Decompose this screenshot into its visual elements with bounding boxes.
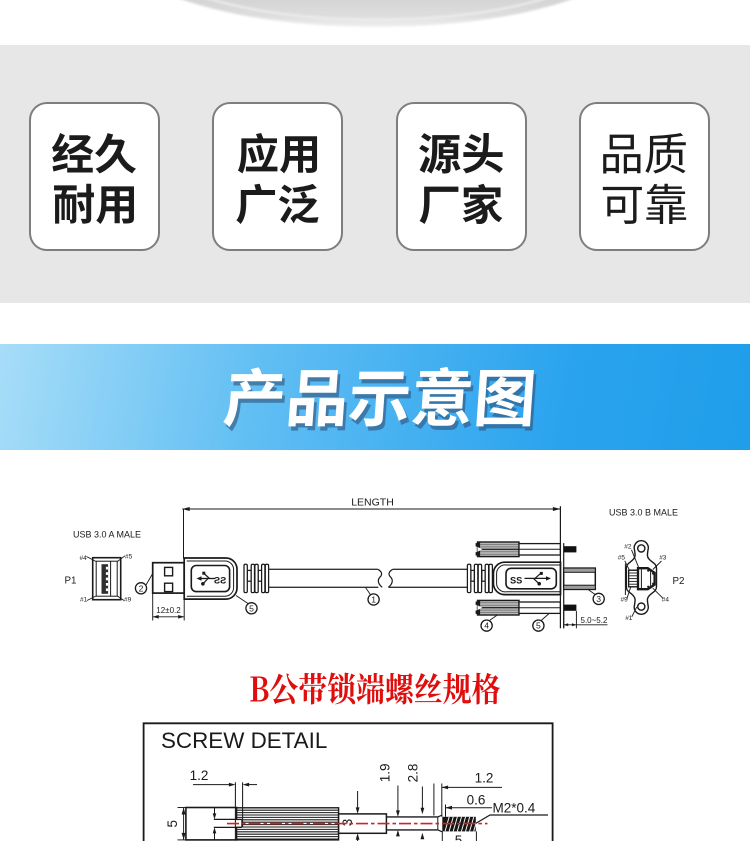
svg-text:5: 5 <box>165 820 180 828</box>
svg-text:1.2: 1.2 <box>190 768 209 783</box>
svg-text:3: 3 <box>340 819 355 827</box>
svg-text:0.6: 0.6 <box>467 792 486 807</box>
svg-text:2: 2 <box>139 583 144 593</box>
svg-text:#1: #1 <box>625 615 633 622</box>
svg-text:#5: #5 <box>618 555 626 562</box>
svg-text:SCREW DETAIL: SCREW DETAIL <box>161 728 327 753</box>
svg-text:5: 5 <box>536 621 541 631</box>
svg-text:LENGTH: LENGTH <box>351 497 394 509</box>
svg-text:P1: P1 <box>65 576 77 587</box>
svg-text:5: 5 <box>249 603 254 613</box>
svg-text:SS: SS <box>214 575 226 585</box>
svg-text:SS: SS <box>510 575 522 585</box>
svg-text:1: 1 <box>371 595 376 605</box>
svg-text:#1: #1 <box>80 597 88 604</box>
svg-text:1.9: 1.9 <box>378 764 393 783</box>
svg-text:12±0.2: 12±0.2 <box>156 606 181 615</box>
svg-text:USB 3.0 A MALE: USB 3.0 A MALE <box>73 530 141 540</box>
svg-text:#9: #9 <box>124 597 132 604</box>
svg-text:#3: #3 <box>659 555 667 562</box>
svg-text:#5: #5 <box>125 554 133 561</box>
svg-text:2.8: 2.8 <box>405 764 420 783</box>
svg-text:#4: #4 <box>662 596 670 603</box>
svg-text:3: 3 <box>596 594 601 604</box>
svg-text:5.0~5.2: 5.0~5.2 <box>581 616 608 625</box>
svg-text:5: 5 <box>455 833 463 841</box>
svg-text:4: 4 <box>484 621 489 631</box>
svg-text:1.2: 1.2 <box>475 770 494 785</box>
svg-text:P2: P2 <box>673 576 685 587</box>
svg-text:USB 3.0 B MALE: USB 3.0 B MALE <box>609 508 678 518</box>
svg-text:#4: #4 <box>80 555 88 562</box>
svg-text:#9: #9 <box>621 596 629 603</box>
svg-text:M2*0.4: M2*0.4 <box>493 800 536 815</box>
svg-text:#2: #2 <box>624 543 632 550</box>
